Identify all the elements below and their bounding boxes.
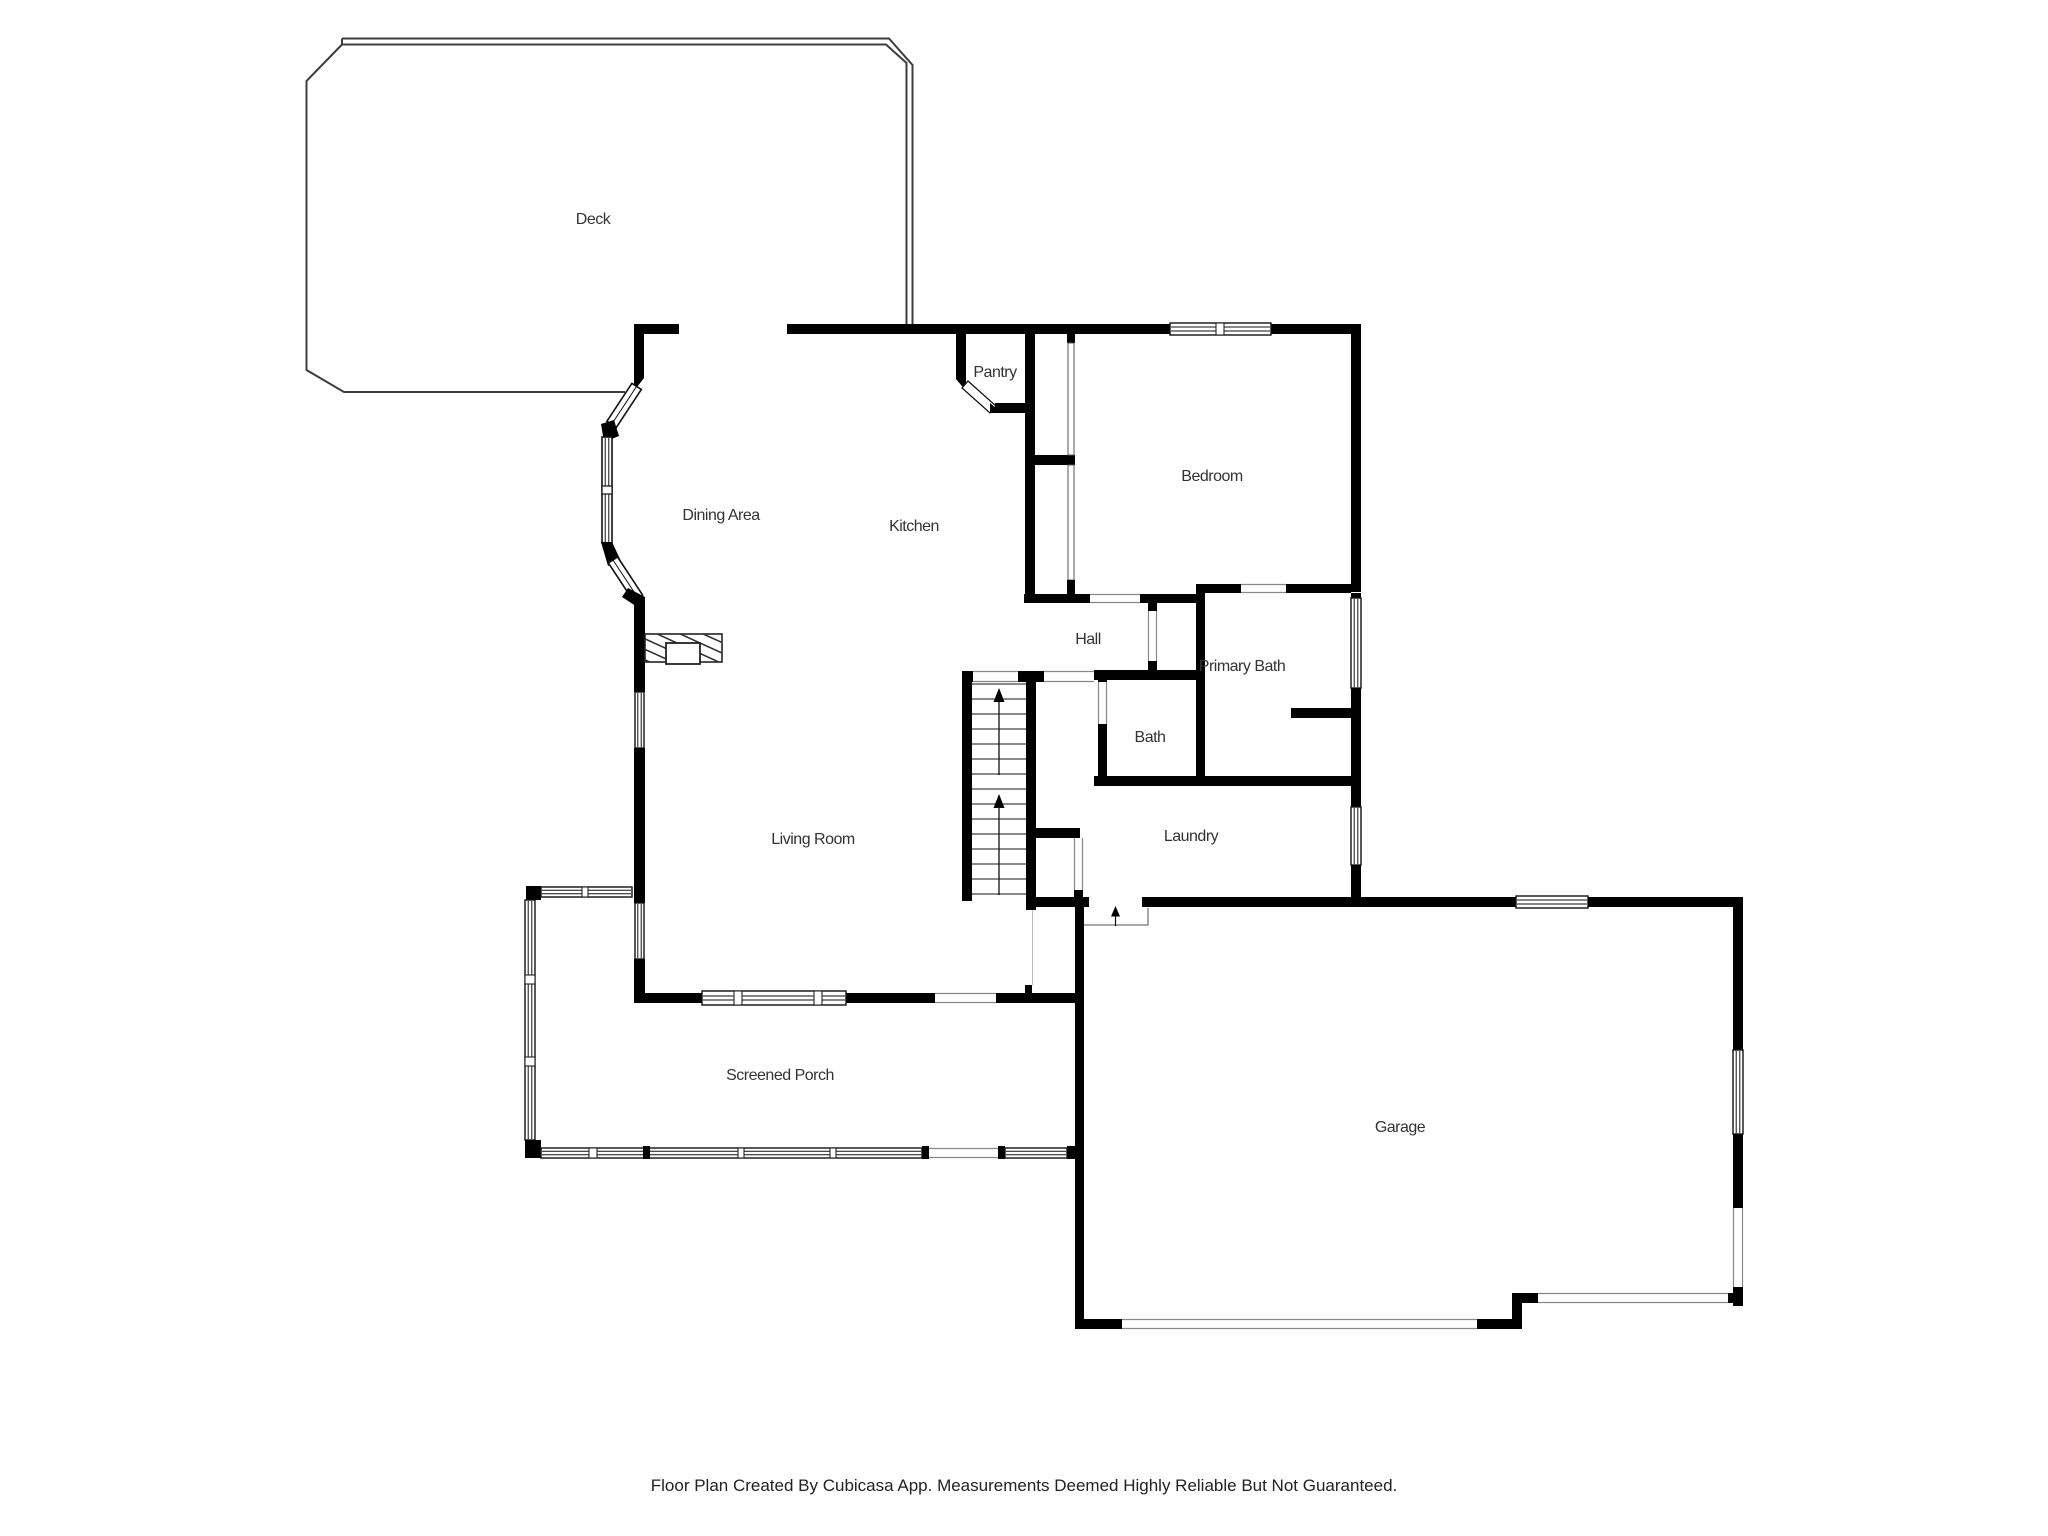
- svg-text:Garage: Garage: [1375, 1119, 1426, 1136]
- svg-text:Bath: Bath: [1135, 729, 1166, 746]
- svg-text:Living Room: Living Room: [771, 831, 855, 848]
- svg-text:Bedroom: Bedroom: [1181, 468, 1243, 485]
- svg-text:Pantry: Pantry: [973, 364, 1017, 381]
- svg-text:Deck: Deck: [576, 211, 612, 228]
- svg-text:Primary Bath: Primary Bath: [1199, 658, 1285, 675]
- svg-text:Kitchen: Kitchen: [889, 518, 939, 535]
- svg-text:Hall: Hall: [1075, 631, 1101, 648]
- svg-text:Screened Porch: Screened Porch: [726, 1067, 834, 1084]
- svg-text:Floor Plan Created By Cubicasa: Floor Plan Created By Cubicasa App. Meas…: [651, 1476, 1398, 1495]
- svg-text:Laundry: Laundry: [1164, 828, 1219, 845]
- svg-text:Dining Area: Dining Area: [682, 507, 760, 524]
